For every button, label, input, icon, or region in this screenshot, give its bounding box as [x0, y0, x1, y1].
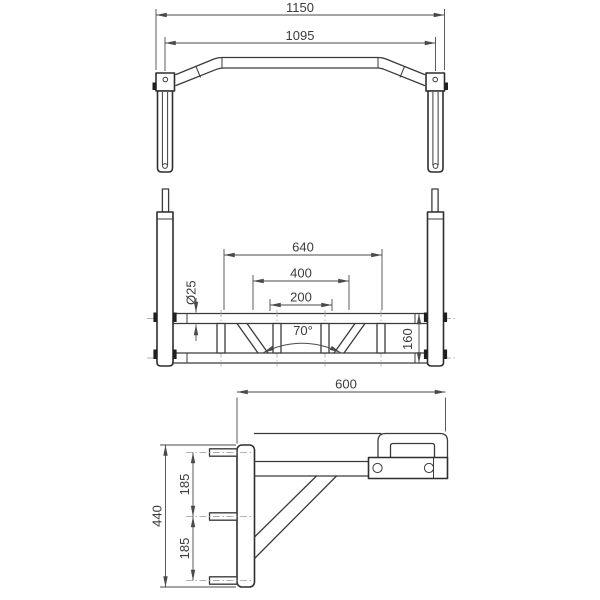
arm-end-bracket	[369, 458, 448, 479]
collar-bolt-tab	[444, 83, 448, 91]
side-bar-assembly	[255, 434, 448, 479]
post-tube	[157, 212, 173, 366]
front-view-post-left	[153, 189, 176, 366]
post-tube	[158, 91, 173, 172]
top-view: 1150 1095	[153, 0, 449, 172]
crossbar-joint-tick-left	[196, 67, 201, 78]
crossbar-outer-line	[176, 58, 425, 75]
side-view: 600	[150, 377, 448, 588]
truss-vertical-member	[273, 324, 281, 354]
truss-vertical-member	[377, 324, 385, 354]
crossbar-tube	[176, 58, 425, 86]
dim-1095-label: 1095	[286, 28, 315, 43]
technical-drawing-page: 1150 1095	[0, 0, 600, 600]
truss-diagonal-left	[247, 324, 268, 354]
dim-1095: 1095	[165, 28, 436, 71]
dim-200: 200	[270, 290, 332, 312]
truss-diagonal-right	[344, 324, 365, 354]
post-bolt-tab	[424, 350, 428, 360]
truss-bottom-chord	[173, 353, 429, 363]
front-view-post-right	[424, 189, 447, 366]
truss-vertical-member	[321, 324, 329, 354]
post-tube	[428, 212, 444, 366]
dim-185-upper-label: 185	[177, 474, 192, 496]
pullup-bar-drawing: 1150 1095	[0, 0, 600, 600]
truss-vertical-member	[217, 324, 225, 354]
post-bolt-tab	[153, 313, 157, 323]
dim-400-label: 400	[290, 266, 312, 281]
bar-uprights-outer	[378, 434, 448, 458]
support-arm	[255, 462, 370, 477]
post-tube	[428, 91, 443, 172]
post-bolt-tab	[173, 350, 177, 360]
post-top-pin	[432, 189, 438, 212]
dim-160-label: 160	[400, 328, 415, 350]
top-view-post-right	[426, 73, 448, 172]
truss-top-chord	[173, 314, 429, 324]
dim-600-label: 600	[335, 377, 357, 392]
dim-185-lower-label: 185	[177, 538, 192, 560]
dim-440-label: 440	[150, 505, 165, 527]
crossbar-joint-tick-right	[400, 67, 405, 78]
dim-1150-label: 1150	[286, 0, 314, 15]
bar-uprights-inner	[391, 444, 435, 458]
front-view: 640 400 200 Ø25 70° 160	[147, 189, 457, 367]
diagonal-brace	[255, 476, 337, 559]
brace-lower-line	[255, 476, 337, 559]
post-bolt-tab	[424, 313, 428, 323]
post-top-pin	[162, 189, 168, 212]
truss-frame	[173, 310, 429, 367]
truss-diagonal-left	[237, 324, 258, 354]
post-bolt-tab	[444, 350, 448, 360]
top-view-post-left	[153, 73, 175, 172]
dim-200-label: 200	[290, 290, 312, 305]
post-bolt-tab	[173, 313, 177, 323]
collar-bolt-tab	[153, 83, 157, 91]
dim-185-lower: 185	[177, 517, 193, 581]
dim-185-upper: 185	[177, 453, 193, 517]
post-bolt-tab	[444, 313, 448, 323]
dim-tube-diameter: Ø25	[184, 280, 199, 341]
wall-mount-plate	[237, 445, 255, 587]
dim-640-label: 640	[292, 240, 314, 255]
crossbar-inner-line	[176, 68, 425, 86]
dim-70deg-label: 70°	[293, 323, 313, 338]
post-bolt-tab	[153, 350, 157, 360]
truss-diagonal-right	[334, 324, 355, 354]
